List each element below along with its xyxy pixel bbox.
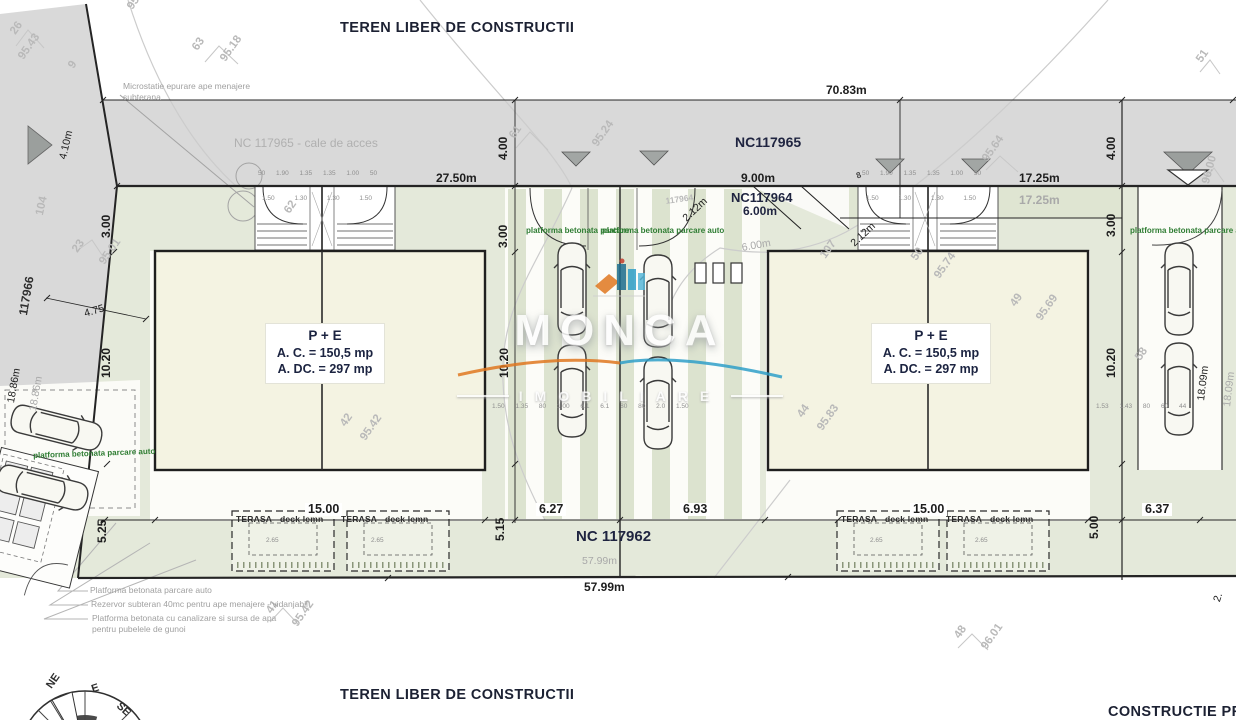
building-left [155,251,485,470]
access-road [102,100,1236,186]
site-plan-drawing: 70.83m27.50m9.00m17.25m17.25m4.004.003.0… [0,0,1236,720]
stairs-left-duplex [255,186,395,250]
compass-rose [19,691,151,720]
plan-graphics [0,0,1236,720]
waste-bins [695,263,742,283]
